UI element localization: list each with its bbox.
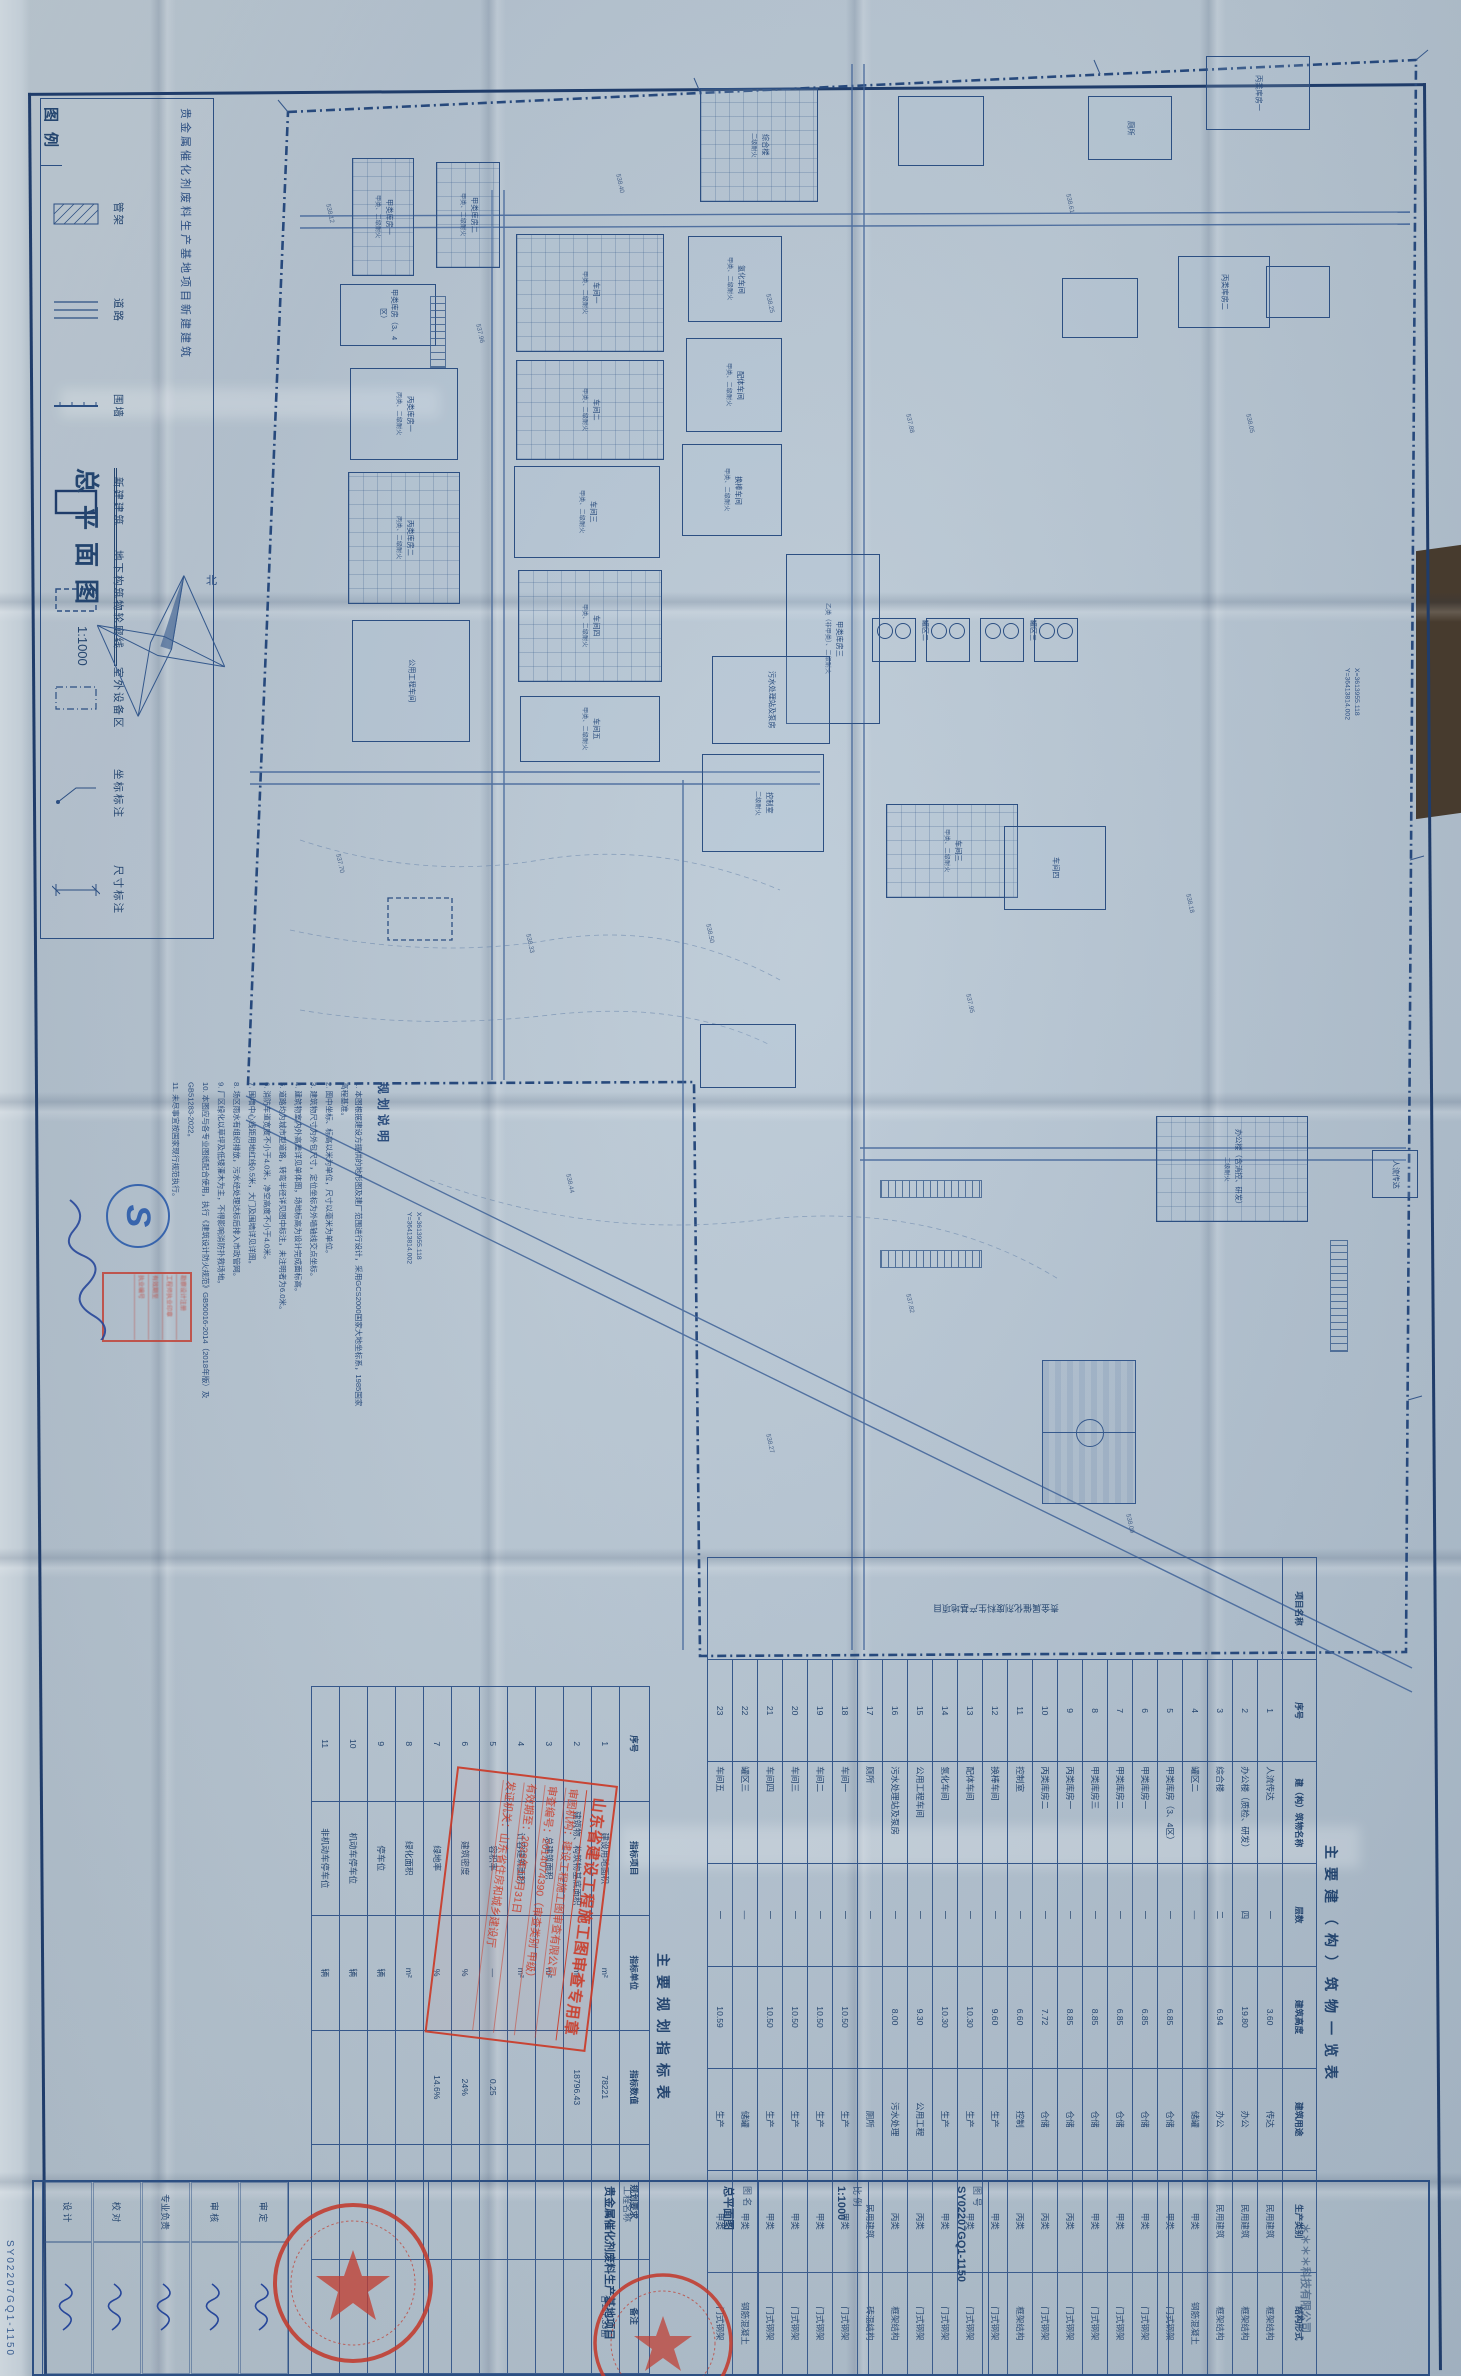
- titleblock-signatures: 审 定 审 核 专业负责 校 对 设 计: [42, 2182, 288, 2374]
- plan-building: 丙类库房二丙类、二级耐火: [348, 472, 460, 604]
- legend-label: 管架: [111, 202, 126, 227]
- plan-building: 丙类库房一: [1206, 56, 1310, 130]
- legend-project-line: 贵金属催化剂废料生产基地项目新建建筑: [178, 108, 194, 360]
- legend-label: 坐标标注: [111, 769, 126, 819]
- tank-group: [926, 618, 970, 662]
- building-label: 污水处理站及泵房: [766, 671, 777, 729]
- building-label: 丙类库房二丙类、二级耐火: [393, 516, 415, 559]
- building-label: 氢化车间甲类、二级耐火: [724, 257, 746, 300]
- note-line: 6. 消防车道宽度不小于4.0米，净空高度不小于4.0米。: [259, 1082, 273, 1412]
- plan-building: 办公楼（含消控、研发）二级耐火: [1156, 1116, 1308, 1222]
- building-header-cell: 层数: [1283, 1864, 1317, 1966]
- coordinate-callout: X=3613955.118Y=36413814.002: [1342, 668, 1361, 720]
- note-line: 4. 建筑物室内外高差详见单体图，场地标高为设计完成面标高。: [290, 1082, 304, 1412]
- note-line: 3. 建筑物尺寸为外包尺寸，定位坐标为外墙轴线交点坐标。: [306, 1082, 320, 1412]
- coordinate-callout: X=3613955.118Y=36413814.002: [404, 1212, 423, 1264]
- plan-building: 丙类库房二: [1178, 256, 1270, 328]
- plan-building: 控制室二级耐火: [702, 754, 824, 852]
- note-line: 2. 图中坐标、标高以米为单位，尺寸以毫米为单位。: [321, 1082, 335, 1412]
- building-label: 办公楼（含消控、研发）二级耐火: [1221, 1129, 1243, 1208]
- note-line: 1. 本图根据建设方提供的地形图及建厂范围进行设计，采用GCS2000国家大地坐…: [336, 1082, 365, 1412]
- plan-building: 车间五甲类、二级耐火: [520, 696, 660, 762]
- building-label: 丙类库房一: [1253, 75, 1264, 111]
- building-label: 车间二甲类、二级耐火: [579, 388, 601, 431]
- legend-label: 尺寸标注: [111, 865, 126, 915]
- building-header-cell: 建筑用途: [1283, 2068, 1317, 2170]
- sign-label: 专业负责: [142, 2182, 190, 2242]
- note-line: 10. 本图应与各专业图纸配合使用，执行《建筑设计防火规范》GB50016-20…: [183, 1082, 212, 1412]
- building-header-cell: 序号: [1283, 1660, 1317, 1762]
- plan-building: 车间三甲类、二级耐火: [514, 466, 660, 558]
- building-label: 甲类库房一甲类、二级耐火: [372, 195, 394, 238]
- reg-stamp-line: 工程师执业印章: [162, 1274, 176, 1340]
- legend-item: 新建建筑: [41, 454, 213, 550]
- titleblock-blank: [988, 2182, 1168, 2374]
- building-label: 厕所: [1125, 121, 1136, 135]
- note-line: 9. 厂区绿化以草坪及低矮灌木为主，不得影响消防扑救场地。: [213, 1082, 227, 1412]
- plan-building: 甲类库房（3、4区）: [340, 284, 436, 346]
- building-header-cell: 建（构）筑物名称: [1283, 1762, 1317, 1864]
- legend-label: 道路: [111, 298, 126, 323]
- tank-group: [1034, 618, 1078, 662]
- plan-building: 配体车间甲类、二级耐火: [686, 338, 782, 432]
- plan-building: 车间一甲类、二级耐火: [516, 234, 664, 352]
- notes-title: 规划说明: [371, 1082, 394, 1412]
- building-label: 车间五甲类、二级耐火: [579, 707, 601, 750]
- indicator-header-cell: 指标数值: [620, 2030, 650, 2145]
- plan-building: [1266, 266, 1330, 318]
- building-label: 车间四: [1050, 857, 1061, 879]
- building-label: 甲类库房二甲类、二级耐火: [457, 193, 479, 236]
- building-label: 丙类库房二: [1219, 274, 1230, 310]
- sign-value: [44, 2242, 92, 2374]
- parking-row: [880, 1180, 982, 1198]
- plan-building: 污水处理站及泵房: [712, 656, 830, 744]
- basketball-court: [1042, 1360, 1136, 1504]
- building-label: 车间三甲类、二级耐火: [941, 829, 963, 872]
- plan-building: 换棒车间甲类、二级耐火: [682, 444, 782, 536]
- note-line: 7. 围墙中心线距用地红线0.5米，大门及围墙详见详图。: [244, 1082, 258, 1412]
- building-label: 控制室二级耐火: [752, 791, 774, 816]
- building-label: 人流传达: [1390, 1160, 1401, 1189]
- plan-review-stamp: 山东省建设工程施工图审查专用章 审图机构：建设工程施工图审查有限公司审查编号：2…: [425, 1766, 618, 2052]
- building-label: 车间三甲类、二级耐火: [576, 490, 598, 533]
- note-line: 11. 未尽事宜按国家现行规范执行。: [168, 1082, 182, 1412]
- building-label: 车间一甲类、二级耐火: [579, 271, 601, 314]
- north-compass-icon: 北: [86, 566, 236, 726]
- plan-building: 厕所: [1088, 96, 1172, 160]
- building-label: 车间四甲类、二级耐火: [579, 604, 601, 647]
- legend-label: 围墙: [111, 394, 126, 419]
- legend-item: 尺寸标注: [41, 842, 213, 938]
- plan-building: 车间二甲类、二级耐火: [516, 360, 664, 460]
- blueprint-photo: 图例 管架 道路 围墙 新建建筑 地下构筑物轮廓线 室外设备区 坐标标注 尺寸标…: [0, 0, 1461, 2376]
- plan-building: 车间三甲类、二级耐火: [886, 804, 1018, 898]
- parking-row: [1330, 1240, 1348, 1352]
- tank-group: [980, 618, 1024, 662]
- legend-symbol-road: [41, 296, 111, 324]
- sign-value: [142, 2242, 190, 2374]
- plan-building: [898, 96, 984, 166]
- sign-value: [93, 2242, 141, 2374]
- company-round-seal-2: [588, 2268, 738, 2376]
- handwritten-signature: [50, 1190, 140, 1340]
- plan-building: 公用工程车间: [352, 620, 470, 742]
- building-label: 甲类库房（3、4区）: [377, 285, 399, 345]
- sign-label: 审 核: [191, 2182, 239, 2242]
- plan-building: [1062, 278, 1138, 338]
- legend-item: 围墙: [41, 358, 213, 454]
- north-label: 北: [206, 574, 217, 587]
- plan-building: 甲类库房二甲类、二级耐火: [436, 162, 500, 268]
- building-header-cell: 项目名称: [1283, 1558, 1317, 1660]
- sign-label: 校 对: [93, 2182, 141, 2242]
- legend-symbol-hatch: [41, 200, 111, 228]
- indicator-header-cell: 序号: [620, 1687, 650, 1802]
- plan-building: 综合楼二级耐火: [700, 88, 818, 202]
- legend-symbol-dim: [41, 876, 111, 904]
- legend-item: 坐标标注: [41, 746, 213, 842]
- indicator-header-cell: 指标项目: [620, 1801, 650, 1916]
- building-label: 丙类库房一丙类、二级耐火: [393, 392, 415, 435]
- company-round-seal: [268, 2198, 438, 2368]
- plan-building: 车间四: [1004, 826, 1106, 910]
- tank-group: [872, 618, 916, 662]
- titleblock-scale: 比 例1:1000: [758, 2182, 868, 2374]
- building-label: 公用工程车间: [406, 659, 417, 702]
- sign-label: 设 计: [44, 2182, 92, 2242]
- plan-building: 人流传达: [1372, 1150, 1418, 1198]
- plan-building: 甲类库房一甲类、二级耐火: [352, 158, 414, 276]
- parking-row: [880, 1250, 982, 1268]
- building-label: 综合楼二级耐火: [748, 133, 770, 158]
- building-header-cell: 建筑高度: [1283, 1966, 1317, 2068]
- margin-drawing-number: SY02207GQ1-1150: [4, 2240, 15, 2357]
- parking-row: [430, 296, 446, 368]
- reg-stamp-line: 勘察设计注册: [176, 1274, 190, 1340]
- note-line: 8. 场区雨水有组织排放，污水经处理达标后排入市政管网。: [228, 1082, 242, 1412]
- titleblock-company: ＊＊＊＊科技有限公司: [1168, 2182, 1428, 2374]
- sign-value: [191, 2242, 239, 2374]
- legend-symbol-wall: [41, 392, 111, 420]
- indicator-header-cell: 指标单位: [620, 1916, 650, 2031]
- reg-stamp-line: 有效期至: [148, 1274, 162, 1340]
- building-label: 配体车间甲类、二级耐火: [723, 363, 745, 406]
- building-label: 换棒车间甲类、二级耐火: [721, 468, 743, 511]
- legend-symbol-coord: [41, 780, 111, 808]
- note-line: 5. 道路均为城市型道路，转弯半径详见图中标注，未注明者为6.0米。: [275, 1082, 289, 1412]
- plan-building: [700, 1024, 796, 1088]
- legend-title: 图例: [41, 99, 62, 166]
- plan-building: 车间四甲类、二级耐火: [518, 570, 662, 682]
- titleblock-dwgno: 图 号SY02207GQ1-1150: [868, 2182, 988, 2374]
- plan-building: 丙类库房一丙类、二级耐火: [350, 368, 458, 460]
